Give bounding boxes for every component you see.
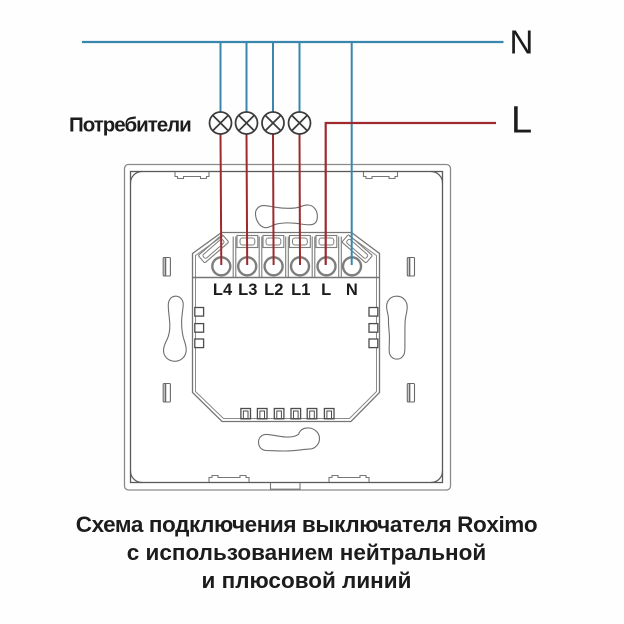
svg-text:N: N bbox=[510, 23, 534, 60]
svg-text:L2: L2 bbox=[264, 281, 283, 299]
svg-text:L4: L4 bbox=[213, 281, 233, 299]
svg-text:Потребители: Потребители bbox=[69, 114, 191, 137]
svg-text:L3: L3 bbox=[238, 281, 257, 299]
svg-text:L: L bbox=[511, 100, 532, 142]
svg-text:L: L bbox=[321, 281, 331, 299]
svg-text:L1: L1 bbox=[291, 281, 310, 299]
svg-text:N: N bbox=[346, 281, 358, 299]
